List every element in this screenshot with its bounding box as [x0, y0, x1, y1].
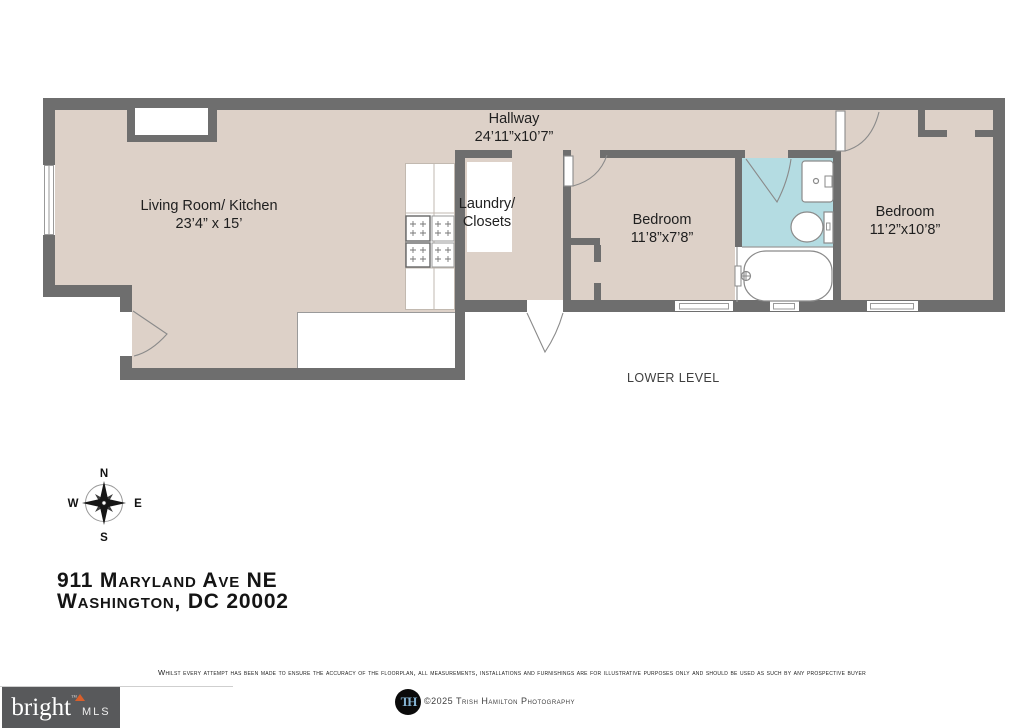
- door-rear-gap: [527, 300, 563, 312]
- compass-e-label: E: [134, 498, 142, 510]
- bedroom2-label: Bedroom 11’2”x10’8”: [870, 204, 941, 239]
- wall-laundry-top: [455, 150, 512, 158]
- address-line1: 911 Maryland Ave NE: [57, 570, 289, 591]
- property-address: 911 Maryland Ave NE Washington, DC 20002: [57, 570, 289, 612]
- compass-w-label: W: [68, 498, 79, 510]
- wall-bedroom1-west: [563, 150, 571, 312]
- window-left-gap: [43, 165, 55, 235]
- photographer-credit: ©2025 Trish Hamilton Photography: [424, 696, 575, 706]
- bright-logo-wordmark: bright™: [11, 695, 77, 720]
- bedroom2-name: Bedroom: [870, 204, 941, 222]
- floor-bathtub-area: [742, 247, 833, 302]
- bright-logo-roof-icon: [75, 694, 85, 701]
- living-room-dims: 23’4” x 15’: [140, 216, 277, 234]
- wall-bathroom-east: [833, 150, 841, 312]
- wall-bedroom1-closet-h: [563, 238, 600, 245]
- hallway-dims: 24’11”x10’7”: [475, 129, 554, 147]
- compass-n-label: N: [100, 468, 108, 480]
- door-entry-gap: [120, 312, 132, 356]
- wall-bedroom1-closet-v1: [594, 245, 601, 262]
- wall-notch: [127, 108, 217, 142]
- level-label: LOWER LEVEL: [627, 371, 720, 385]
- bright-mls-logo: bright™ MLS: [2, 687, 120, 728]
- wall-left-upper: [43, 108, 55, 165]
- wall-kitchen-divider: [455, 150, 465, 380]
- wall-right: [993, 98, 1005, 312]
- stair-area: [297, 312, 455, 368]
- wall-living-bottom: [43, 285, 130, 297]
- photographer-monogram-icon: TH: [395, 689, 421, 715]
- wall-lowerleft-upper: [120, 285, 132, 312]
- hallway-name: Hallway: [475, 111, 554, 129]
- bright-logo-mls-text: MLS: [82, 706, 111, 718]
- bedroom1-dims: 11’8”x7’8”: [631, 230, 694, 248]
- wall-bathroom-west: [735, 158, 742, 247]
- compass-icon: N S W E: [68, 468, 143, 544]
- wall-bedroom2-closet-h1: [918, 130, 947, 137]
- laundry-label: Laundry/ Closets: [459, 196, 515, 231]
- bedroom1-name: Bedroom: [631, 212, 694, 230]
- wall-interior-top-a: [600, 150, 745, 158]
- laundry-name-line2: Closets: [459, 214, 515, 232]
- laundry-name-line1: Laundry/: [459, 196, 515, 214]
- bedroom1-label: Bedroom 11’8”x7’8”: [631, 212, 694, 247]
- floor-bathroom: [742, 158, 833, 247]
- bedroom2-dims: 11’2”x10’8”: [870, 222, 941, 240]
- wall-left-lower: [43, 235, 55, 287]
- wall-bedroom2-closet-h2: [975, 130, 993, 137]
- door-swing-rear: [527, 313, 563, 352]
- compass-s-label: S: [100, 532, 108, 544]
- window-bedroom1-gap: [675, 301, 733, 311]
- kitchen-counter: [405, 163, 455, 310]
- address-line2: Washington, DC 20002: [57, 591, 289, 612]
- living-room-label: Living Room/ Kitchen 23’4” x 15’: [140, 198, 277, 233]
- disclaimer-text: Whilst every attempt has been made to en…: [0, 668, 1024, 677]
- window-bedroom2-gap: [867, 301, 918, 311]
- wall-bedroom1-closet-v2: [594, 283, 601, 302]
- living-room-name: Living Room/ Kitchen: [140, 198, 277, 216]
- window-bath-gap: [770, 301, 799, 311]
- floorplan-page: N S W E Hallway 24’11”x10’7” Living Room…: [0, 0, 1024, 728]
- wall-interior-top-b: [788, 150, 837, 158]
- hallway-label: Hallway 24’11”x10’7”: [475, 111, 554, 146]
- wall-extension-bottom: [120, 368, 465, 380]
